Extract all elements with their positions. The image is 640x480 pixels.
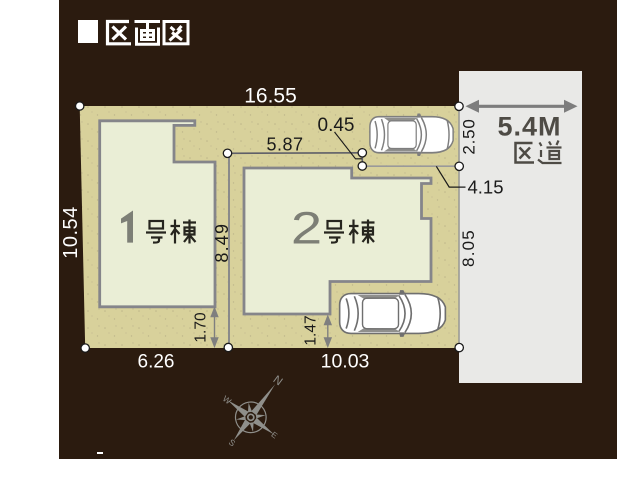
svg-text:16.55: 16.55: [244, 85, 297, 108]
svg-text:6.26: 6.26: [138, 352, 175, 373]
svg-text:1.47: 1.47: [303, 315, 320, 345]
svg-text:5.4M: 5.4M: [497, 112, 561, 142]
svg-text:0.45: 0.45: [318, 115, 355, 136]
svg-text:10.54: 10.54: [60, 206, 82, 259]
svg-text:8.05: 8.05: [459, 229, 478, 267]
svg-text:8.49: 8.49: [212, 223, 232, 263]
svg-text:2: 2: [291, 203, 322, 253]
svg-text:10.03: 10.03: [321, 351, 370, 373]
svg-text:5.87: 5.87: [266, 135, 303, 155]
svg-text:2.50: 2.50: [460, 118, 479, 154]
svg-text:4.15: 4.15: [467, 176, 503, 197]
svg-text:1.70: 1.70: [193, 312, 210, 343]
